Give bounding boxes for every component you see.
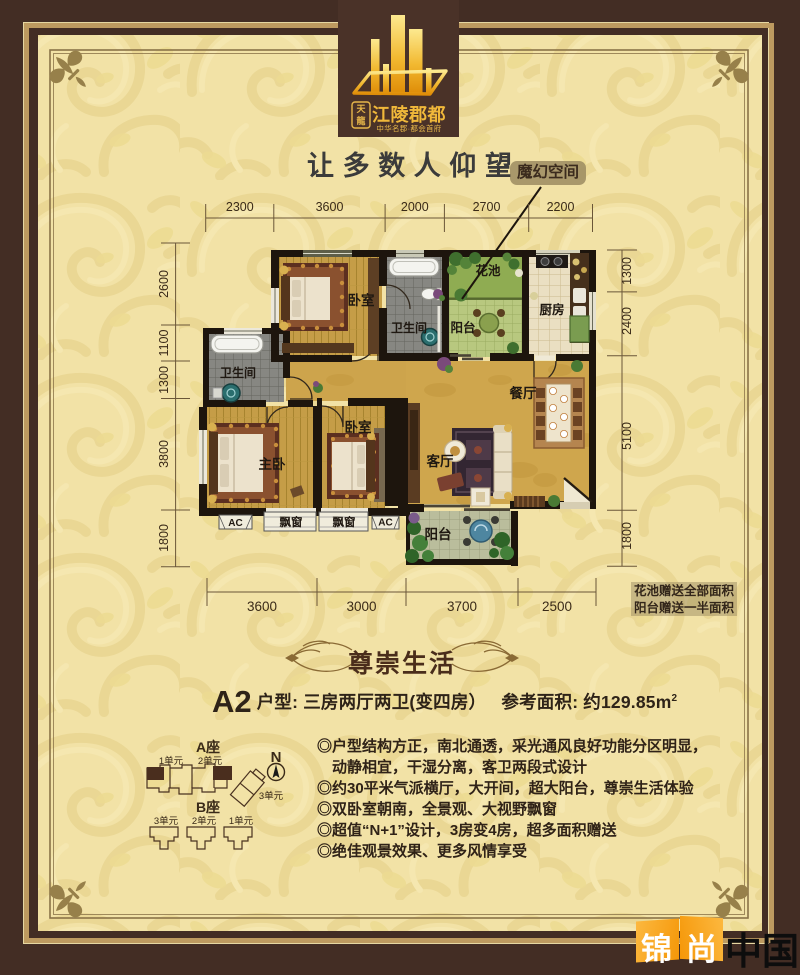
svg-text:主卧: 主卧 [259,456,286,472]
svg-text:AC: AC [378,518,392,529]
svg-text:2单元: 2单元 [192,815,217,827]
svg-text:3800: 3800 [157,440,171,468]
svg-text:卧室: 卧室 [345,419,372,435]
svg-text:5100: 5100 [620,422,634,450]
svg-text:3000: 3000 [346,599,376,614]
svg-text:2200: 2200 [547,200,575,214]
svg-text:1300: 1300 [620,257,634,285]
svg-text:1单元: 1单元 [229,815,254,827]
svg-text:餐厅: 餐厅 [509,385,538,401]
svg-text:2500: 2500 [542,599,572,614]
svg-text:阳台: 阳台 [425,526,452,542]
svg-text:A座: A座 [196,739,220,755]
svg-text:3600: 3600 [316,200,344,214]
svg-text:卫生间: 卫生间 [391,320,427,335]
svg-text:3单元: 3单元 [154,815,179,827]
svg-text:1300: 1300 [157,366,171,394]
svg-text:阳台: 阳台 [450,320,475,335]
svg-text:2300: 2300 [226,200,254,214]
svg-text:3700: 3700 [447,599,477,614]
svg-text:1800: 1800 [620,522,634,550]
svg-text:3单元: 3单元 [259,790,284,802]
svg-text:厨房: 厨房 [539,302,564,317]
svg-text:2单元: 2单元 [198,755,223,767]
svg-text:客厅: 客厅 [426,453,454,469]
svg-text:B座: B座 [196,799,220,815]
svg-text:飘窗: 飘窗 [280,515,303,529]
svg-text:1800: 1800 [157,524,171,552]
svg-text:AC: AC [228,518,242,529]
svg-text:卫生间: 卫生间 [220,365,256,380]
svg-text:2400: 2400 [620,307,634,335]
svg-text:2000: 2000 [401,200,429,214]
svg-text:1单元: 1单元 [159,755,184,767]
svg-text:2700: 2700 [473,200,501,214]
svg-text:1100: 1100 [157,330,171,357]
svg-text:3600: 3600 [247,599,277,614]
svg-text:2600: 2600 [157,270,171,298]
svg-text:飘窗: 飘窗 [333,515,356,529]
svg-text:卧室: 卧室 [348,292,375,308]
